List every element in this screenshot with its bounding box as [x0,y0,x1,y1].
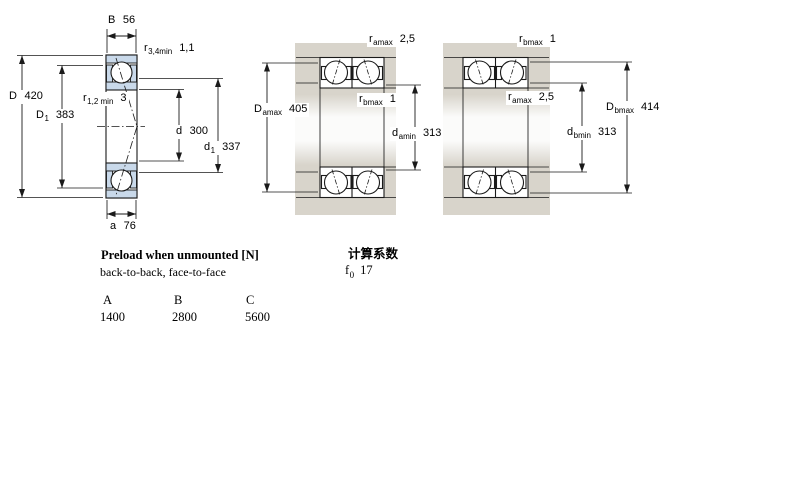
bearing-pair-top [320,58,384,89]
dim-sub: amax [262,108,282,117]
dim-value: 300 [190,125,208,137]
preload-value-a: 1400 [100,310,125,325]
bearing-pair-bottom [463,167,528,198]
dim-sub: amax [512,96,532,105]
dim-base: d [567,126,573,138]
dim-value: 414 [641,101,659,113]
dim-base: d [176,125,182,137]
dim-label-ramax-a: ramax2,5 [367,33,417,47]
dim-value: 76 [124,220,136,232]
preload-col-b: B [174,293,182,308]
dim-label-ramax-b: ramax2,5 [506,91,556,105]
calc-factor-f0: f017 [345,263,373,283]
dim-label-Dbmax: Dbmax414 [604,101,661,115]
dim-label-D: D420 [7,90,45,104]
dim-sub: 3,4min [148,47,172,56]
dim-sub: 1 [211,146,215,155]
calc-title: 计算系数 [348,247,398,262]
dim-label-damin: damin313 [390,127,443,141]
dim-value: 2,5 [539,91,554,103]
dim-value: 405 [289,103,307,115]
bearing-pair-top [463,58,528,89]
dim-label-dbmin: dbmin313 [565,126,618,140]
dim-value: 1 [550,33,556,45]
dim-sub: bmax [363,98,383,107]
dim-base: D [9,90,17,102]
dim-label-d1: d1337 [202,141,242,155]
single-bearing-figure [17,29,223,219]
dim-base: D [254,103,262,115]
dim-base: d [392,127,398,139]
dim-label-a: a76 [108,220,138,234]
dim-base: B [108,14,115,26]
dim-base: D [606,101,614,113]
dim-base: a [110,220,116,232]
bearing-datasheet-drawing: B56 r3,4min1,1 D420 D1383 r1,2 min3 d300… [0,0,800,500]
dim-label-r12: r1,2 min3 [81,92,129,106]
dim-sub: amin [399,132,416,141]
ball-top [111,62,132,83]
dim-sub: bmax [523,38,543,47]
dim-D [17,56,103,198]
dim-value: 2,5 [400,33,415,45]
dim-value: 420 [24,90,42,102]
factor-sub: 0 [350,270,355,280]
dim-sub: bmax [614,106,634,115]
dim-value: 337 [222,141,240,153]
dim-value: 3 [120,92,126,104]
dim-value: 313 [598,126,616,138]
dim-value: 313 [423,127,441,139]
dim-B [107,29,136,53]
dim-label-Damax: Damax405 [252,103,309,117]
preload-value-b: 2800 [172,310,197,325]
factor-base: f [345,263,349,277]
dim-base: D [36,109,44,121]
factor-value: 17 [360,263,373,277]
dim-label-B: B56 [106,14,137,28]
dim-value: 1 [390,93,396,105]
bearing-pair-bottom [320,167,384,198]
dim-label-r34: r3,4min1,1 [142,42,196,56]
dim-label-d: d300 [174,125,210,139]
dim-value: 56 [123,14,135,26]
preload-value-c: 5600 [245,310,270,325]
dim-D1 [57,66,103,189]
dim-sub: bmin [574,131,591,140]
dim-base: d [204,141,210,153]
dim-value: 1,1 [179,42,194,54]
dim-sub: amax [373,38,393,47]
dim-a [107,200,136,219]
dim-label-rbmax-a: rbmax1 [357,93,398,107]
preload-subtitle: back-to-back, face-to-face [100,265,226,280]
preload-title: Preload when unmounted [N] [101,248,259,263]
dim-label-D1: D1383 [34,109,76,123]
ball-bottom [111,170,132,191]
preload-col-a: A [103,293,112,308]
dim-sub: 1,2 min [87,97,113,106]
preload-col-c: C [246,293,254,308]
dim-sub: 1 [44,114,48,123]
dim-label-rbmax-b: rbmax1 [517,33,558,47]
dim-value: 383 [56,109,74,121]
